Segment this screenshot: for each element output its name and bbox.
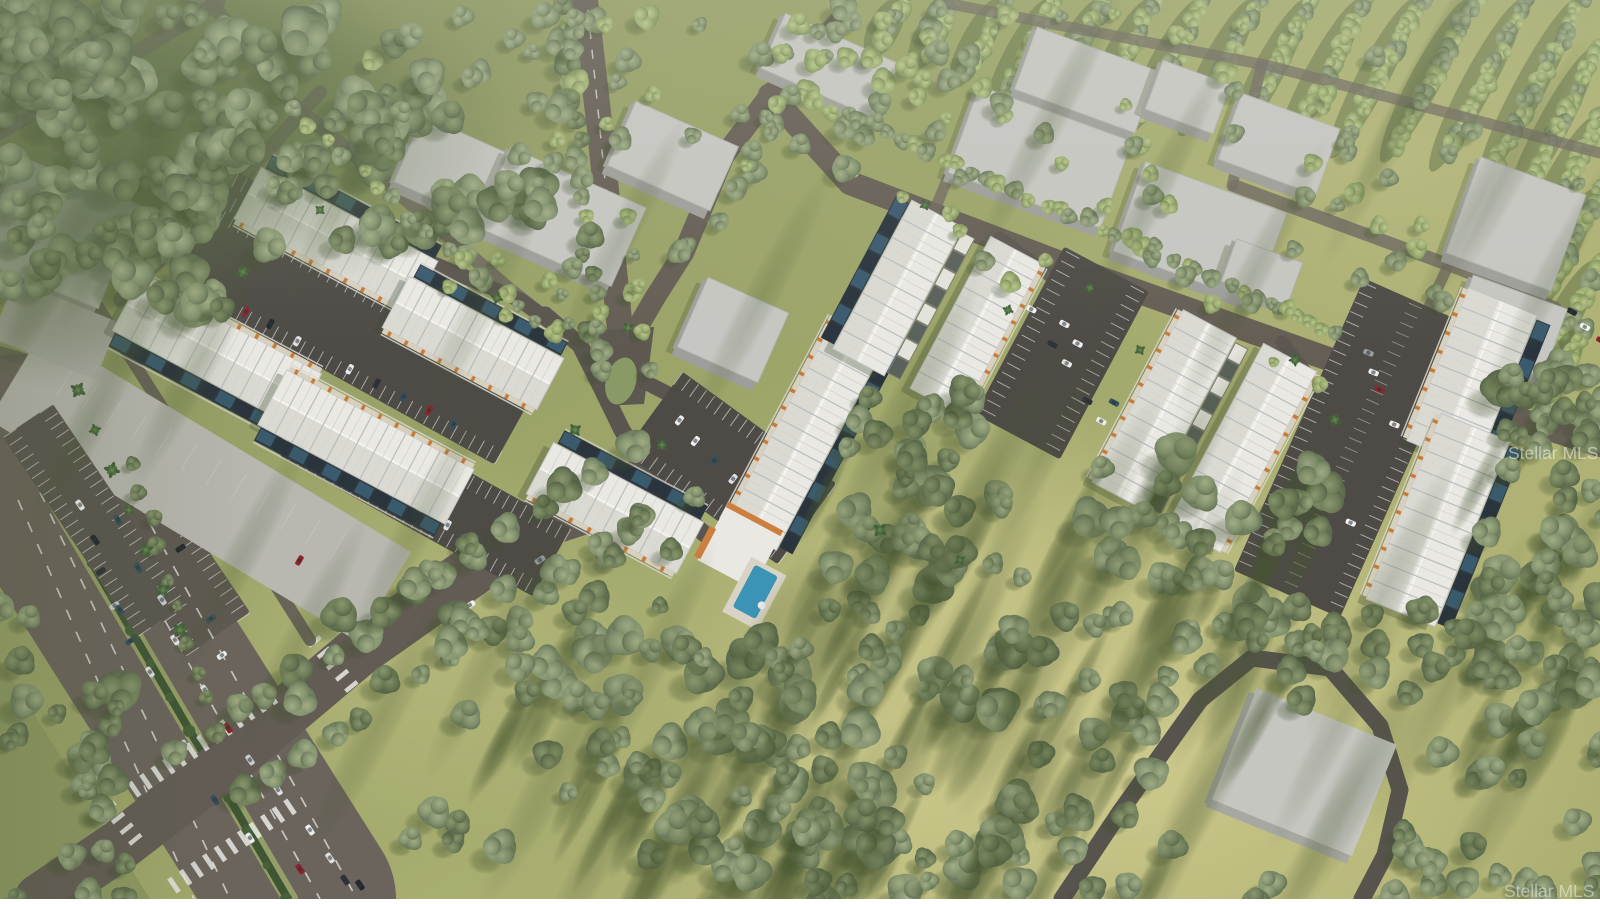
svg-text:Stellar MLS: Stellar MLS <box>1508 443 1598 463</box>
svg-text:Stellar MLS: Stellar MLS <box>1504 881 1594 899</box>
